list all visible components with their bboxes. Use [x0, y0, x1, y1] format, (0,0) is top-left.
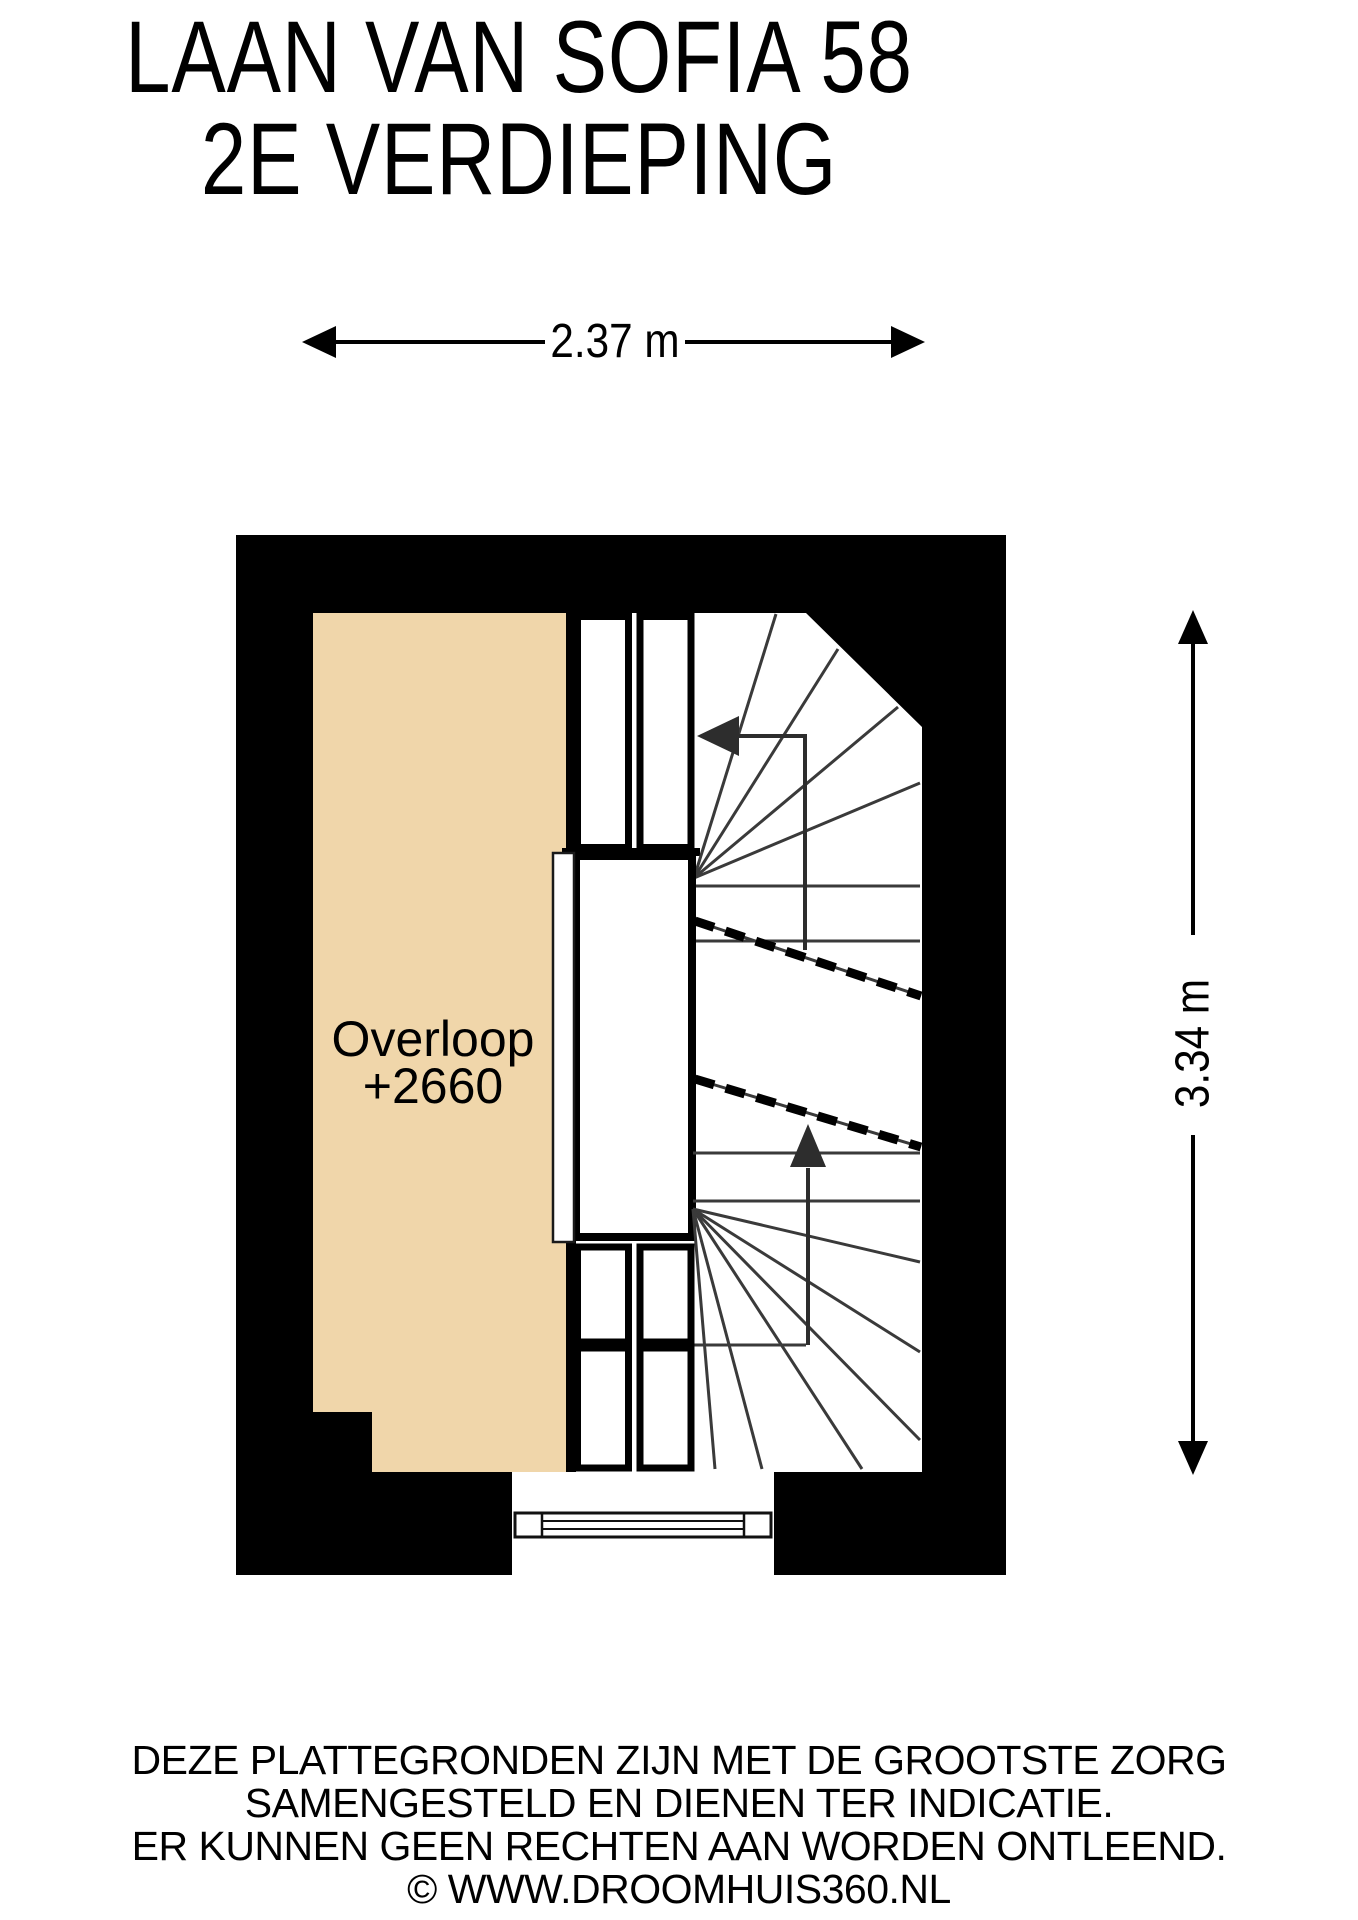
upper-cut-line: [695, 921, 921, 996]
page-title-line1: LAAN VAN SOFIA 58: [104, 6, 934, 108]
copyright-line: © WWW.DROOMHUIS360.NL: [0, 1868, 1358, 1911]
disclaimer-line1: DEZE PLATTEGRONDEN ZIJN MET DE GROOTSTE …: [0, 1739, 1358, 1782]
page-title-line2: 2E VERDIEPING: [104, 108, 934, 210]
window-symbol: [512, 1472, 774, 1575]
disclaimer-line2: SAMENGESTELD EN DIENEN TER INDICATIE.: [0, 1782, 1358, 1825]
disclaimer: DEZE PLATTEGRONDEN ZIJN MET DE GROOTSTE …: [0, 1739, 1358, 1911]
floor-plan-svg: [0, 0, 1358, 1920]
room-elevation: +2660: [283, 1063, 583, 1110]
floor-plan-page: LAAN VAN SOFIA 58 2E VERDIEPING 2.37 m 3…: [0, 0, 1358, 1920]
room-name: Overloop: [283, 1016, 583, 1063]
height-dimension-label: 3.34 m: [1166, 956, 1221, 1132]
staircase: [553, 614, 921, 1469]
direction-arrow-left: [697, 716, 805, 950]
disclaimer-line3: ER KUNNEN GEEN RECHTEN AAN WORDEN ONTLEE…: [0, 1825, 1358, 1868]
room-label: Overloop +2660: [283, 1016, 583, 1110]
stair-landing: [576, 856, 692, 1237]
width-dimension-label: 2.37 m: [527, 314, 703, 369]
